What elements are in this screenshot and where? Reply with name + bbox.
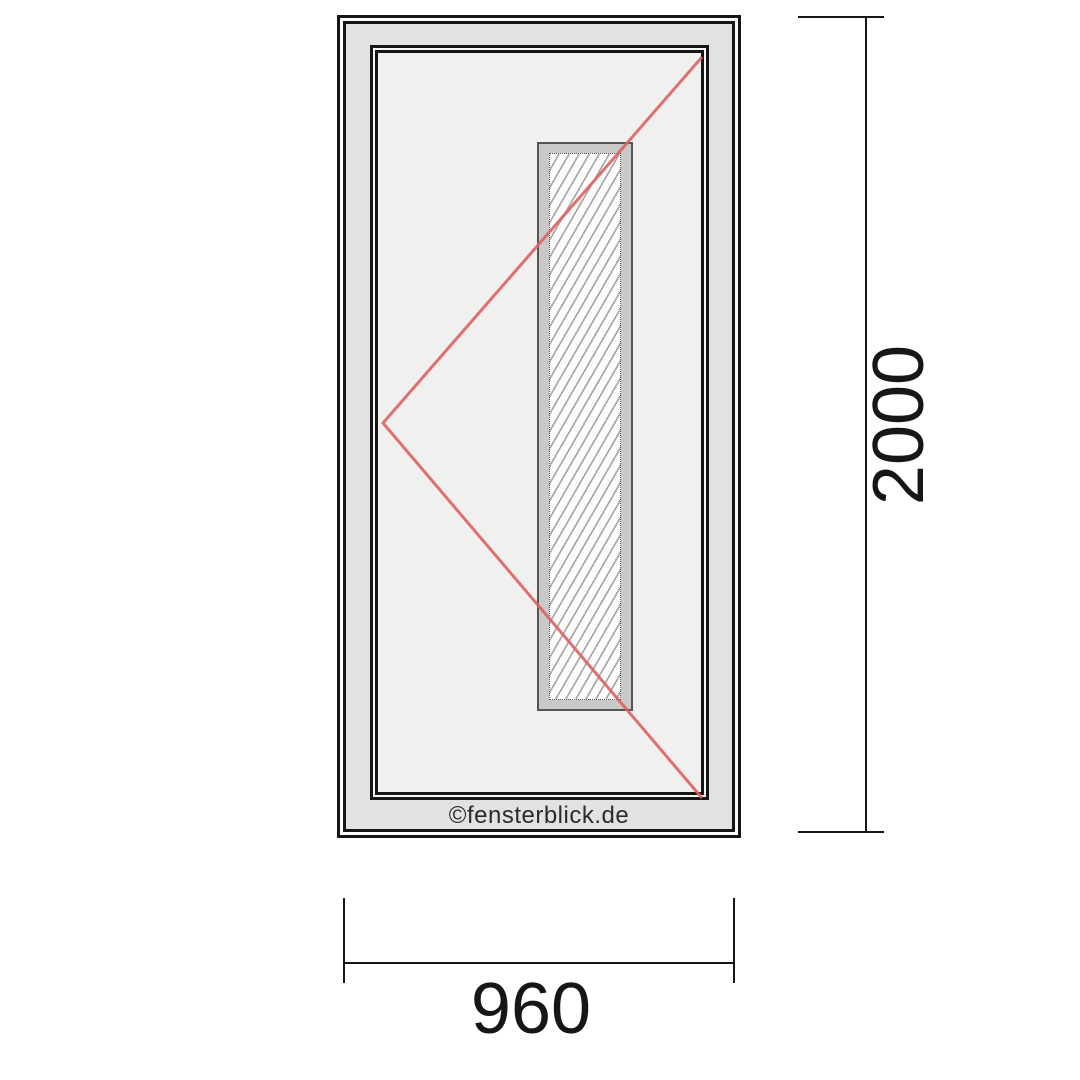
width-dimension-line [343,962,735,964]
width-dimension-label: 960 [471,973,591,1045]
height-dimension-tick-bottom [798,831,884,833]
door-drawing-canvas: ©fensterblick.de 2000 960 [0,0,1080,1080]
opening-direction-indicator [337,15,741,838]
width-dimension-tick-left [343,898,345,983]
height-dimension-label: 2000 [863,345,935,505]
height-dimension-tick-top [798,16,884,18]
watermark: ©fensterblick.de [337,802,741,830]
door-drawing: ©fensterblick.de [337,15,741,838]
width-dimension-tick-right [733,898,735,983]
opening-direction-lines [383,57,702,798]
